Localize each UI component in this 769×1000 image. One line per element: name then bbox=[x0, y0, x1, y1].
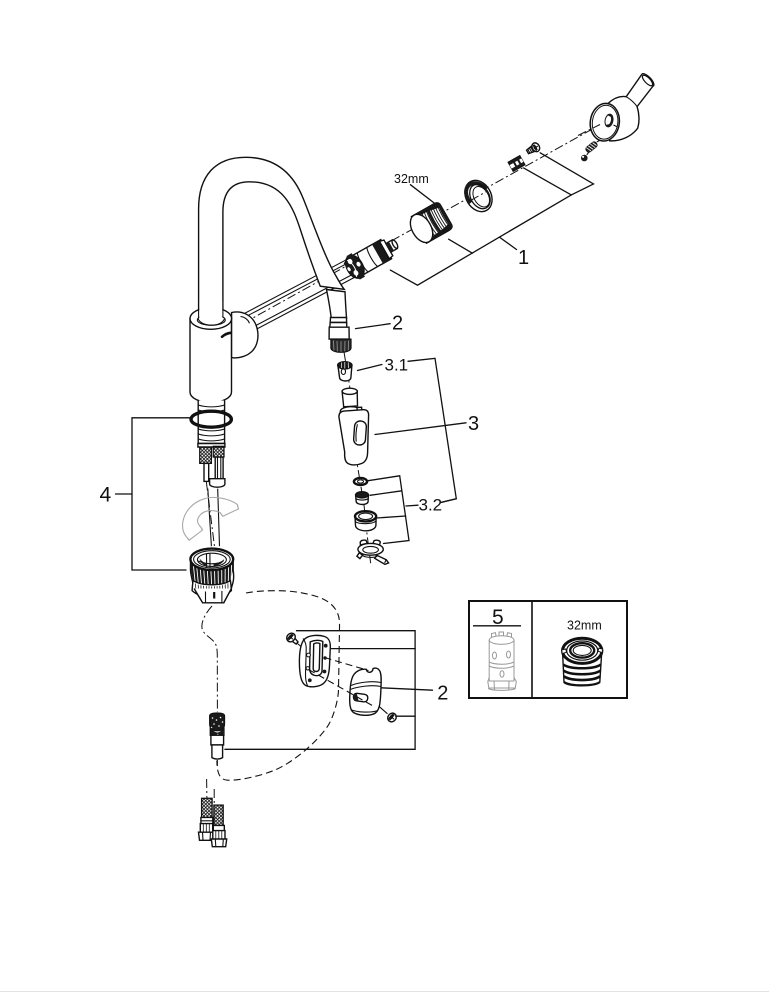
svg-text:32mm: 32mm bbox=[567, 619, 602, 633]
svg-text:1: 1 bbox=[518, 247, 529, 269]
svg-text:2: 2 bbox=[437, 683, 448, 705]
svg-text:32mm: 32mm bbox=[394, 172, 429, 186]
svg-text:2: 2 bbox=[392, 313, 403, 335]
svg-text:3: 3 bbox=[468, 413, 479, 435]
svg-text:3.2: 3.2 bbox=[419, 496, 443, 515]
svg-text:4: 4 bbox=[100, 484, 112, 507]
svg-text:3.1: 3.1 bbox=[385, 356, 409, 375]
